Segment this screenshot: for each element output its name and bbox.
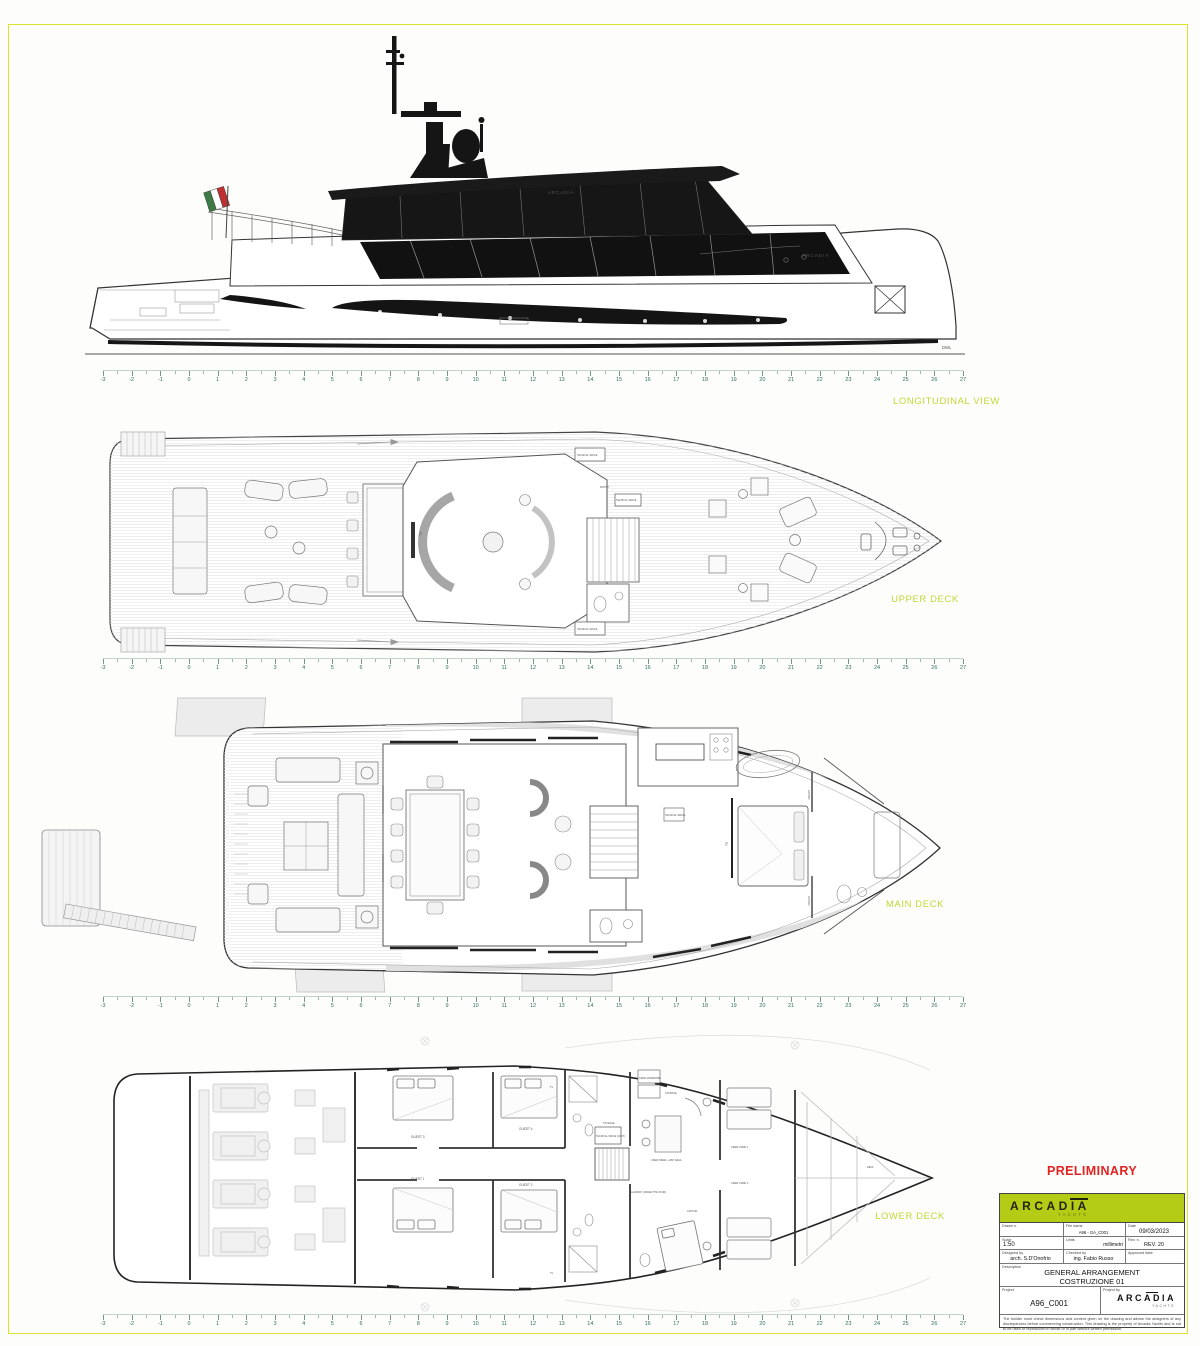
svg-text:CREW CABIN 2: CREW CABIN 2 [731, 1182, 749, 1185]
main-deck-label: MAIN DECK [855, 899, 975, 910]
upper-deck-drawing: TV TECNICAL SPACE TECNICAL SPACE TECNICA… [95, 424, 955, 660]
svg-text:TECNICAL SPACE: TECNICAL SPACE [665, 814, 686, 817]
scale-ruler-main: -3-2-10123456789101112131415161718192021… [103, 996, 963, 1013]
lower-deck-drawing: GUEST 3 GUEST 4 GUEST 1 GUEST 2 CREW DIN… [95, 1028, 950, 1320]
svg-text:STORAGE: STORAGE [603, 1122, 615, 1125]
radar-mast [386, 36, 488, 178]
svg-text:LIBRARY: LIBRARY [808, 895, 811, 906]
svg-text:GUEST 1: GUEST 1 [411, 1177, 425, 1181]
filename-cell: File name A96 - GA_C001 [1064, 1223, 1126, 1236]
svg-text:GUEST 4: GUEST 4 [519, 1127, 533, 1131]
svg-text:TECNICAL SPACE: TECNICAL SPACE [616, 499, 637, 502]
units-cell: Units millimetri [1064, 1237, 1126, 1249]
svg-text:CREW DINER + WET AREA: CREW DINER + WET AREA [651, 1159, 682, 1162]
scale-ruler-upper: -3-2-10123456789101112131415161718192021… [103, 658, 963, 675]
scale-ruler-longitudinal: -3-2-10123456789101112131415161718192021… [103, 370, 963, 387]
svg-text:CAPTAIN: CAPTAIN [687, 1210, 697, 1213]
dwl-label: DWL [942, 345, 952, 350]
drawing-sheet: DWL ARCADIA ARCADIA [0, 0, 1200, 1346]
svg-text:GUEST 2: GUEST 2 [519, 1183, 533, 1187]
swim-platform [42, 830, 196, 941]
longitudinal-view-drawing: DWL ARCADIA ARCADIA [80, 28, 980, 378]
svg-text:LIBRARY: LIBRARY [808, 789, 811, 800]
scale-cell: Scale 1:50 [1000, 1237, 1064, 1249]
title-block-logo-band: ARCADIA YACHTS [1000, 1194, 1184, 1223]
description-line1: GENERAL ARRANGEMENT [1000, 1268, 1184, 1277]
arcadia-logo-sub: YACHTS [1058, 1212, 1088, 1217]
upper-deck-label: UPPER DECK [865, 594, 985, 605]
svg-text:LAUNDRY (UNDER THE STAIR): LAUNDRY (UNDER THE STAIR) [631, 1191, 666, 1194]
svg-text:TECNICAL SPACE (VENT.): TECNICAL SPACE (VENT.) [596, 1135, 626, 1138]
rev-cell: Rev. n. REV. 20 [1126, 1237, 1184, 1249]
main-deck-drawing: TECNICAL SPACE TV LIBRARY LIBRARY [38, 694, 955, 996]
drawn-cell: Drawn n. [1000, 1223, 1064, 1236]
longitudinal-view-label: LONGITUDINAL VIEW [880, 396, 1000, 407]
svg-text:TECNICAL SPACE: TECNICAL SPACE [577, 628, 598, 631]
arcadia-logo-small-sub: YACHTS [1152, 1304, 1175, 1308]
svg-text:GUEST 3: GUEST 3 [411, 1135, 425, 1139]
arcadia-logo-bar [1070, 1198, 1088, 1200]
svg-text:CREW CABIN 1: CREW CABIN 1 [731, 1146, 749, 1149]
svg-text:STORAGE: STORAGE [665, 1092, 677, 1095]
disclaimer-text: The builder must check dimensions and co… [1000, 1315, 1184, 1334]
svg-text:PANTRY: PANTRY [600, 486, 610, 489]
svg-text:TECNICAL SPACE: TECNICAL SPACE [577, 454, 598, 457]
project-by-cell: Project by ARCADIA YACHTS [1101, 1287, 1184, 1314]
arcadia-logo-small: ARCADIA [1117, 1293, 1176, 1303]
title-block: ARCADIA YACHTS Drawn n. File name A96 - … [999, 1193, 1185, 1328]
lower-deck-label: LOWER DECK [850, 1211, 970, 1222]
svg-text:DECK: DECK [867, 1166, 874, 1169]
svg-text:CREW WARDROBE: CREW WARDROBE [639, 1077, 661, 1080]
svg-text:TV: TV [550, 1086, 553, 1089]
approved-cell: Approved date [1126, 1250, 1184, 1263]
description-line2: COSTRUZIONE 01 [1000, 1277, 1184, 1286]
preliminary-stamp: PRELIMINARY [1047, 1164, 1137, 1178]
arcadia-logo: ARCADIA [1010, 1199, 1090, 1213]
designed-cell: Designed by arch. S.D'Onofrio [1000, 1250, 1064, 1263]
flag [204, 186, 230, 212]
upper-saloon [403, 454, 607, 628]
checked-cell: Checked by ing. Fabio Russo [1064, 1250, 1126, 1263]
project-cell: Project A96_C001 [1000, 1287, 1101, 1314]
brand-roof-text: ARCADIA [548, 190, 575, 195]
svg-text:TV: TV [550, 1272, 553, 1275]
scale-ruler-lower: -3-2-10123456789101112131415161718192021… [103, 1314, 963, 1331]
date-cell: Date 09/03/2023 [1126, 1223, 1184, 1236]
arcadia-logo-small-bar [1146, 1292, 1158, 1293]
description-cell: Description GENERAL ARRANGEMENT COSTRUZI… [1000, 1264, 1184, 1287]
